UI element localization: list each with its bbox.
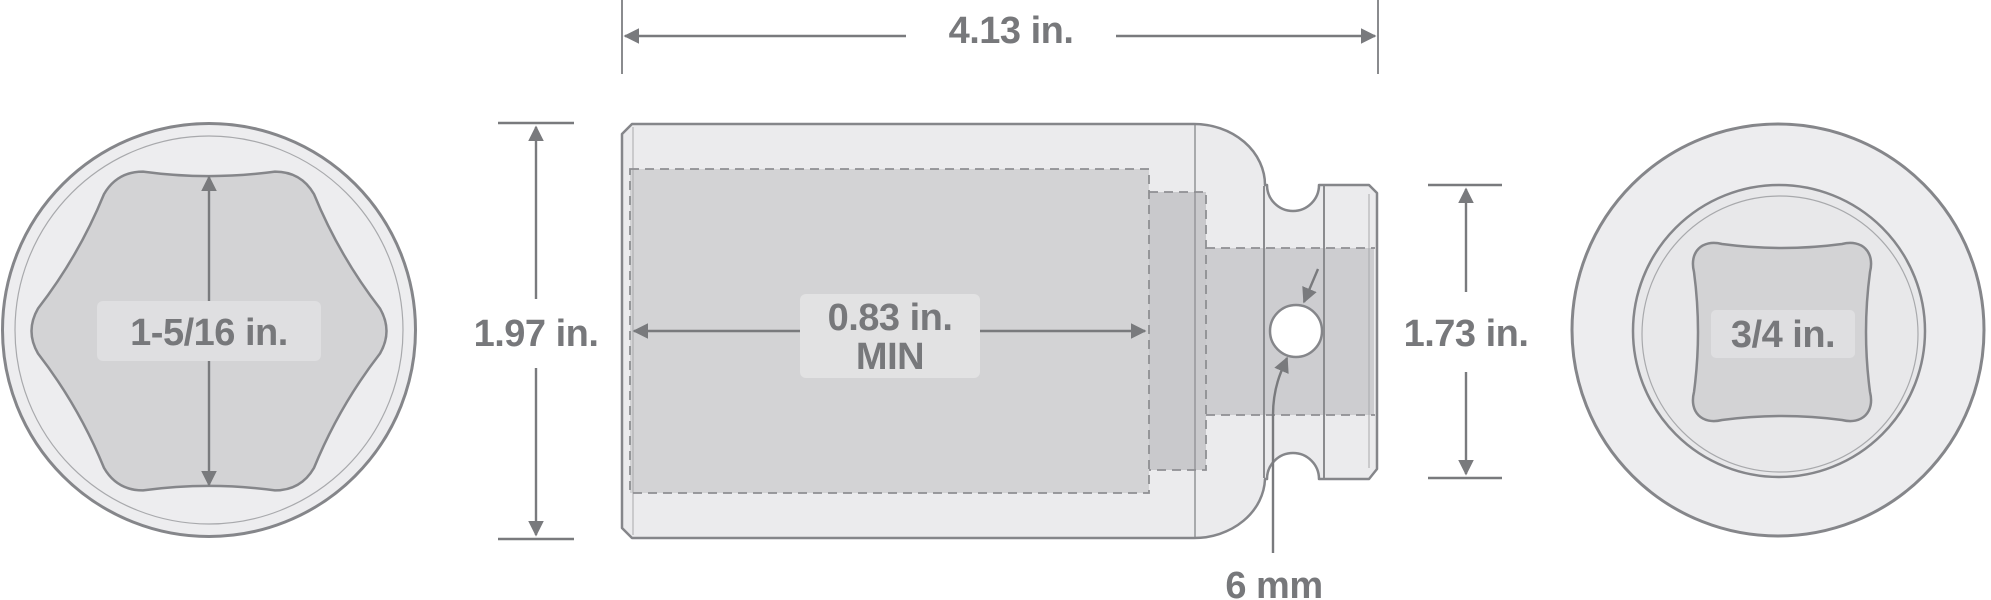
hex-size-label: 1-5/16 in.: [130, 312, 288, 354]
length-label: 4.13 in.: [949, 10, 1074, 52]
height-label: 1.97 in.: [474, 313, 599, 355]
drive-height-label: 1.73 in.: [1404, 313, 1529, 355]
socket-dimension-diagram: 1-5/16 in. 4.13 in.: [0, 0, 1991, 600]
pin-hole: [1270, 305, 1322, 357]
dimension-overall-length: 4.13 in.: [622, 0, 1378, 74]
front-view: 1-5/16 in.: [3, 124, 416, 537]
bore-depth-qualifier-label: MIN: [856, 336, 924, 378]
side-view: 4.13 in. 1.97 in. 0.83 in. MIN 1.73 in.: [474, 0, 1529, 600]
dimension-drive-size: 3/4 in.: [1711, 310, 1855, 358]
pin-hole-label: 6 mm: [1225, 565, 1322, 600]
diagram-canvas: 1-5/16 in. 4.13 in.: [0, 0, 1991, 600]
drive-size-label: 3/4 in.: [1731, 314, 1835, 356]
dimension-body-height: 1.97 in.: [474, 123, 599, 539]
deep-bore-region: [1149, 192, 1206, 470]
bore-depth-label: 0.83 in.: [828, 297, 953, 339]
rear-view: 3/4 in.: [1572, 124, 1984, 536]
dimension-drive-height: 1.73 in.: [1404, 185, 1529, 478]
